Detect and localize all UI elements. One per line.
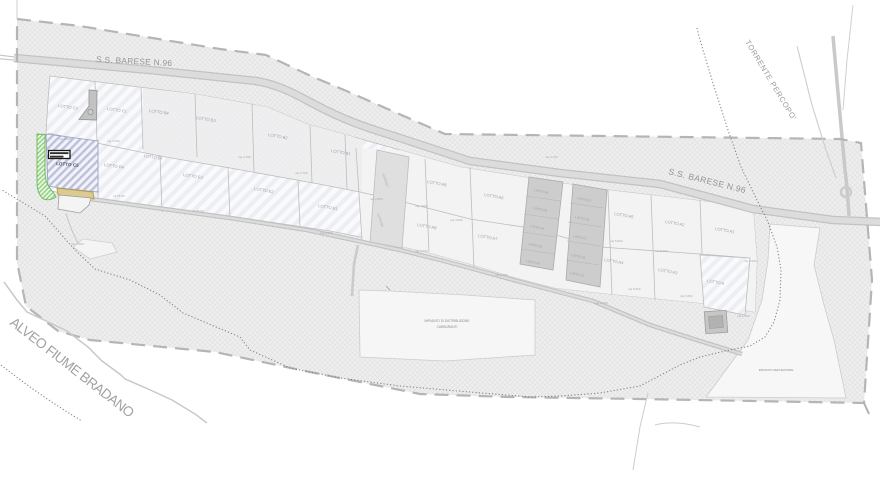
svg-text:mq 4.100: mq 4.100 [107,139,120,143]
svg-text:mq 4.700: mq 4.700 [295,171,308,175]
svg-text:mq 4.700: mq 4.700 [238,155,251,159]
svg-text:mq 5.660: mq 5.660 [610,239,623,243]
svg-text:mq 1.200: mq 1.200 [67,187,80,191]
svg-text:mq 3.700: mq 3.700 [320,231,333,235]
svg-text:mq 3.700: mq 3.700 [495,273,508,277]
svg-text:mq 2.350: mq 2.350 [370,197,383,201]
svg-text:mq 5.660: mq 5.660 [628,287,641,291]
svg-text:mq 4.660: mq 4.660 [415,204,428,208]
svg-text:IMPIANTO DI DISTRIBUZIONE: IMPIANTO DI DISTRIBUZIONE [425,319,470,323]
svg-text:mq 5.660: mq 5.660 [655,249,668,253]
svg-text:mq 5.025: mq 5.025 [59,137,72,141]
svg-text:mq 3.700: mq 3.700 [415,249,428,253]
svg-text:mq 5.660: mq 5.660 [680,294,693,298]
svg-text:mq 4.660: mq 4.660 [450,218,463,222]
svg-text:mq 1.660: mq 1.660 [737,314,750,318]
svg-text:ml 75.00: ml 75.00 [113,194,125,198]
svg-text:mq 5.660: mq 5.660 [744,259,757,263]
svg-text:ml 75.00: ml 75.00 [192,209,204,213]
svg-text:IMPIANTO DEPURATORE: IMPIANTO DEPURATORE [759,368,794,372]
svg-text:CARBURANTI: CARBURANTI [437,325,458,329]
svg-text:mq 2.500: mq 2.500 [71,242,84,246]
svg-text:mq 3.700: mq 3.700 [595,301,608,305]
svg-text:mq 3.700: mq 3.700 [545,155,558,159]
